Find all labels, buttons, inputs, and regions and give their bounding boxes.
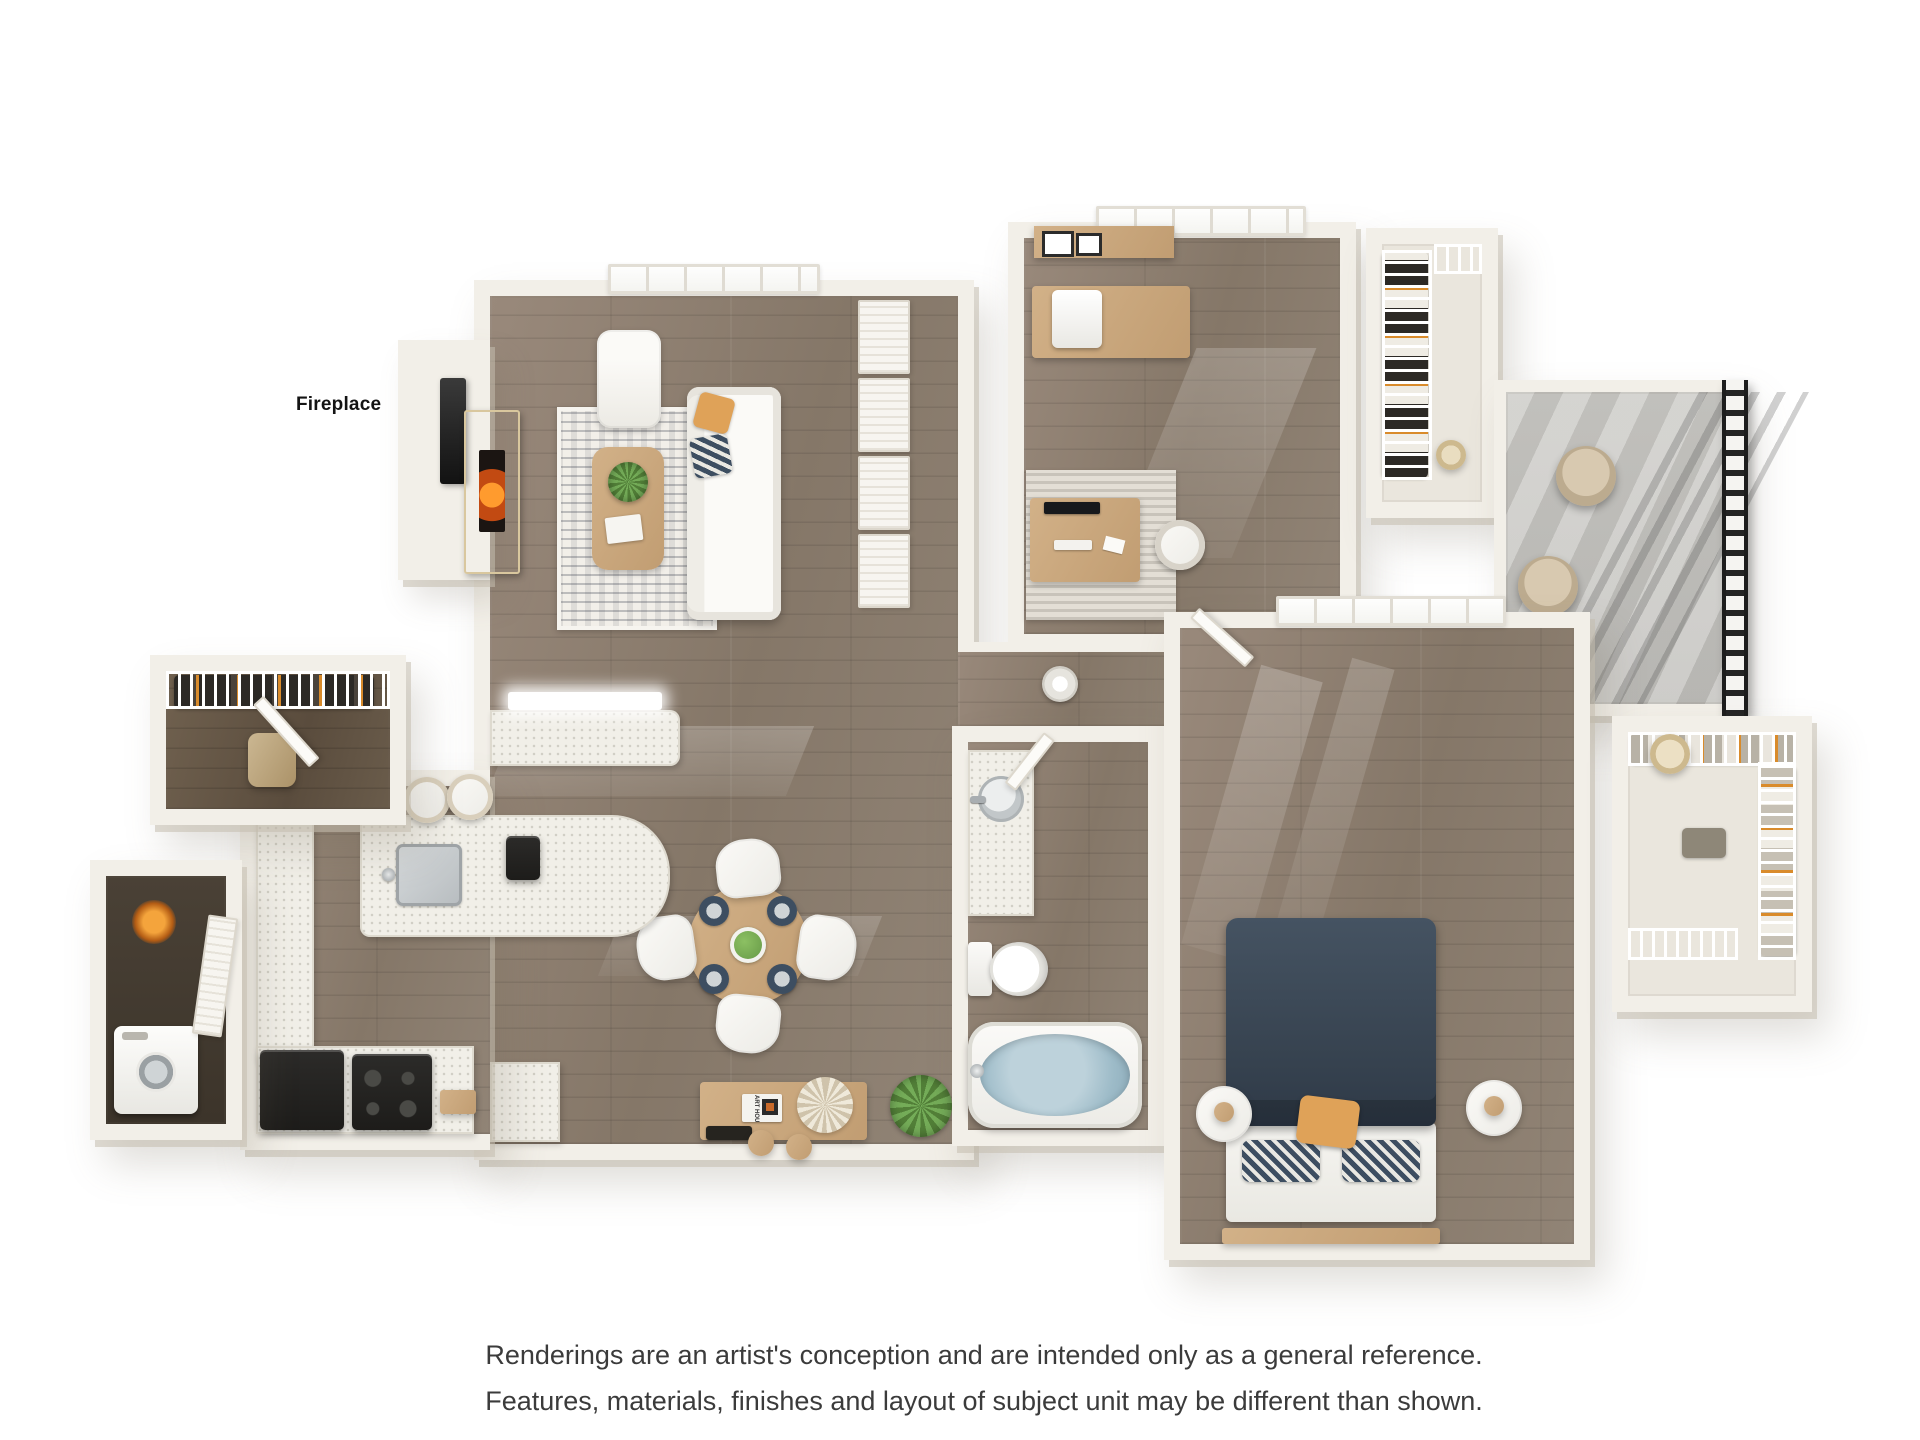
washer [114,1026,198,1114]
bar-stool [404,777,450,823]
wire-shelf [1382,250,1432,480]
book [605,514,644,544]
bedroom-door [1190,608,1254,668]
sunlight-patch [1270,658,1395,959]
place-setting [699,964,729,994]
kitchen-counter-left [256,816,314,1062]
dining-chair [713,992,783,1056]
room-bathroom [952,726,1164,1146]
picture-frame-icon [1076,233,1102,256]
bedroom-window [1276,596,1506,626]
accent-pillow-orange [1295,1095,1360,1150]
washer-door [136,1052,176,1092]
fireplace-chimney [398,340,490,580]
bed [1226,918,1436,1238]
toilet-bowl [990,942,1048,996]
bar-stool [447,774,493,820]
dining-chair [713,836,783,900]
fireplace-label: Fireplace [296,394,381,416]
art-book-cover-art-icon [762,1099,778,1115]
pillow-patterned [1242,1140,1320,1182]
room-walk-in-closet [1612,716,1812,1012]
hallway [958,642,1192,736]
room-entry-closet [150,655,406,825]
tub-faucet [970,1064,984,1078]
dried-flowers [797,1077,853,1133]
living-room-window [608,264,820,294]
throw-pillow-navy [689,433,733,479]
patio-chair [1518,556,1578,616]
closet-door-panel [858,300,910,374]
patio-chair [1556,446,1616,506]
centerpiece [730,927,766,963]
tv-icon [440,378,466,484]
floor-plant [890,1075,952,1137]
art-book: ART HOUSE [742,1094,782,1122]
disclaimer: Renderings are an artist's conception an… [0,1332,1920,1424]
wire-shelf [166,671,390,709]
place-setting [767,896,797,926]
closet-door-panel [858,378,910,452]
cutting-board [440,1090,476,1114]
room-office-closet [1366,228,1498,518]
disclaimer-line-2: Features, materials, finishes and layout… [48,1378,1920,1424]
toilet-tank [968,942,992,996]
nightstand-decor [1214,1102,1234,1122]
dining-chair [794,912,860,983]
kitchen-counter-segment [490,1062,560,1142]
disclaimer-line-1: Renderings are an artist's conception an… [48,1332,1920,1378]
wire-shelf [1758,762,1796,960]
folded-clothes [1682,828,1726,858]
hat [1436,440,1466,470]
island-faucet [382,868,395,881]
art-book-title: ART HOUSE [753,1095,759,1122]
place-setting [767,964,797,994]
refrigerator [260,1050,344,1130]
water-heater-glow [132,900,176,944]
pillow-patterned [1342,1140,1420,1182]
closet-door-panel [858,534,910,608]
room-utility-closet [90,860,242,1140]
wall-shelf [1034,226,1174,258]
nightstand [1466,1080,1522,1136]
wire-shelf [1434,244,1482,274]
wire-shelf [1628,928,1738,960]
room-kitchen [240,770,490,1150]
headboard [1222,1228,1440,1244]
duvet [1226,918,1436,1126]
nightstand [1196,1086,1252,1142]
stool [748,1130,774,1156]
printer [1052,290,1102,348]
toaster [506,836,540,880]
keyboard [1054,540,1092,550]
vanity-faucet [970,796,986,803]
washer-dial [122,1032,148,1040]
room-living-dining: ART HOUSE [474,280,974,1160]
potted-plant-icon [608,462,648,502]
room-office [1008,222,1356,650]
sunlight-patch [1181,665,1322,961]
bathtub [968,1022,1142,1128]
picture-frame-icon [1042,231,1074,257]
nightstand-decor [1484,1096,1504,1116]
armchair [597,330,661,428]
monitor [1044,502,1100,514]
peninsula-counter [490,710,680,766]
tub-water [980,1034,1130,1116]
peninsula-window-light [508,692,662,710]
place-setting [699,896,729,926]
firebox [479,450,505,532]
closet-door-panel [858,456,910,530]
island-sink [396,844,462,906]
fireplace-hearth [464,410,520,574]
serving-tray [706,1126,752,1140]
pendant-lamp [1042,666,1078,702]
desk-chair [1155,520,1205,570]
room-bedroom [1164,612,1590,1260]
balcony-railing [1722,380,1748,716]
hamper [1650,734,1690,774]
range [352,1054,432,1130]
louvered-door [192,914,238,1037]
floorplan-rendering: ART HOUSE Fireplace [0,0,1920,1440]
stool [786,1134,812,1160]
